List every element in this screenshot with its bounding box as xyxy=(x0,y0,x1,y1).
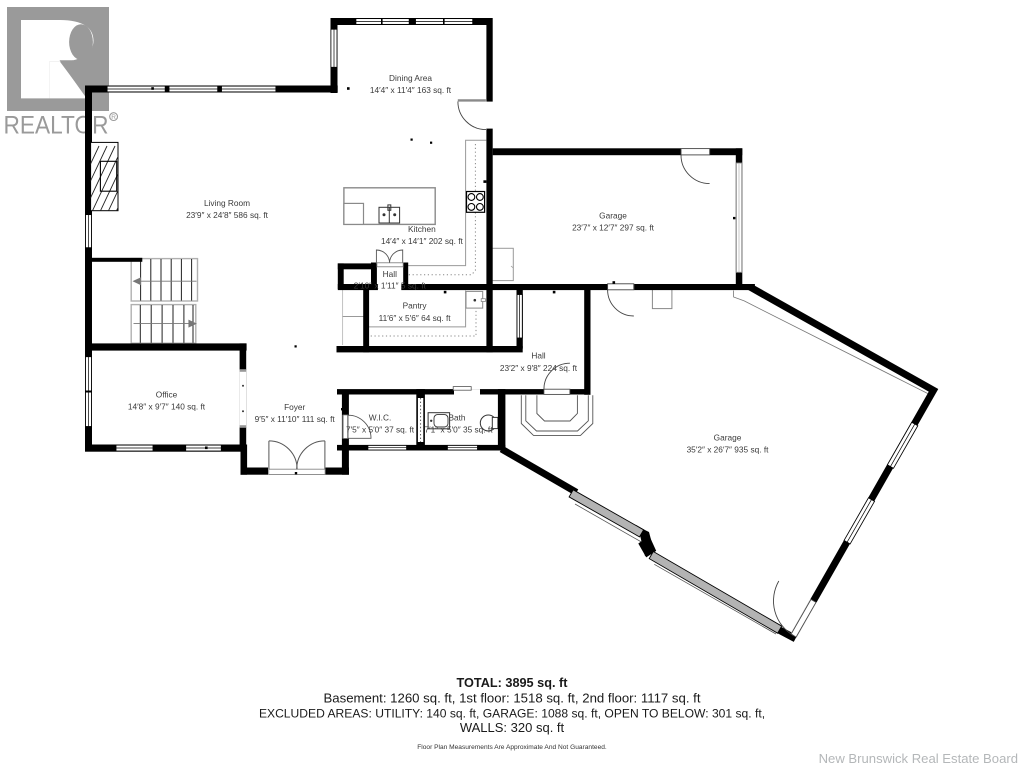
svg-text:14′4″ x 14′1″ 202 sq. ft: 14′4″ x 14′1″ 202 sq. ft xyxy=(381,236,464,246)
svg-text:Dining Area: Dining Area xyxy=(389,73,432,83)
svg-text:EXCLUDED AREAS: UTILITY: 140 s: EXCLUDED AREAS: UTILITY: 140 sq. ft, GAR… xyxy=(259,707,765,721)
svg-text:W.I.C.: W.I.C. xyxy=(369,412,392,422)
svg-text:23′2″ x 9′8″ 224 sq. ft: 23′2″ x 9′8″ 224 sq. ft xyxy=(500,363,578,373)
svg-text:R: R xyxy=(111,114,116,121)
svg-text:23′9″ x 24′8″ 586 sq. ft: 23′9″ x 24′8″ 586 sq. ft xyxy=(186,210,269,220)
svg-text:14′8″ x 9′7″ 140 sq. ft: 14′8″ x 9′7″ 140 sq. ft xyxy=(128,401,206,411)
svg-text:Kitchen: Kitchen xyxy=(408,224,436,234)
svg-text:REALTOR: REALTOR xyxy=(4,112,109,140)
svg-text:Foyer: Foyer xyxy=(284,402,305,412)
svg-text:35′2″ x 26′7″ 935 sq. ft: 35′2″ x 26′7″ 935 sq. ft xyxy=(687,444,770,454)
svg-text:TOTAL: 3895 sq. ft: TOTAL: 3895 sq. ft xyxy=(457,676,569,690)
svg-text:Garage: Garage xyxy=(714,433,742,443)
svg-text:2′10″ x 1′11″ 5 sq. ft: 2′10″ x 1′11″ 5 sq. ft xyxy=(354,281,427,291)
svg-text:Pantry: Pantry xyxy=(403,300,428,310)
svg-text:9′5″ x 11′10″ 111 sq. ft: 9′5″ x 11′10″ 111 sq. ft xyxy=(255,414,336,424)
svg-text:7′5″ x 5′0″ 37 sq. ft: 7′5″ x 5′0″ 37 sq. ft xyxy=(346,425,415,435)
svg-text:New Brunswick Real Estate Boar: New Brunswick Real Estate Board xyxy=(819,751,1018,766)
svg-text:11′6″ x 5′6″ 64 sq. ft: 11′6″ x 5′6″ 64 sq. ft xyxy=(379,313,452,323)
svg-text:Garage: Garage xyxy=(599,211,627,221)
svg-text:Living Room: Living Room xyxy=(204,198,250,208)
svg-text:Office: Office xyxy=(156,389,178,399)
svg-text:Hall: Hall xyxy=(383,269,397,279)
svg-text:Basement: 1260 sq. ft, 1st flo: Basement: 1260 sq. ft, 1st floor: 1518 s… xyxy=(323,691,700,706)
svg-text:WALLS: 320 sq. ft: WALLS: 320 sq. ft xyxy=(460,720,565,735)
svg-text:23′7″ x 12′7″ 297 sq. ft: 23′7″ x 12′7″ 297 sq. ft xyxy=(572,222,655,232)
svg-text:Floor Plan Measurements Are Ap: Floor Plan Measurements Are Approximate … xyxy=(417,744,607,751)
svg-text:14′4″ x 11′4″ 163 sq. ft: 14′4″ x 11′4″ 163 sq. ft xyxy=(370,85,452,95)
svg-text:Hall: Hall xyxy=(531,350,545,360)
svg-text:7′1″ x 5′0″ 35 sq. ft: 7′1″ x 5′0″ 35 sq. ft xyxy=(424,425,493,435)
svg-text:Bath: Bath xyxy=(448,412,465,422)
